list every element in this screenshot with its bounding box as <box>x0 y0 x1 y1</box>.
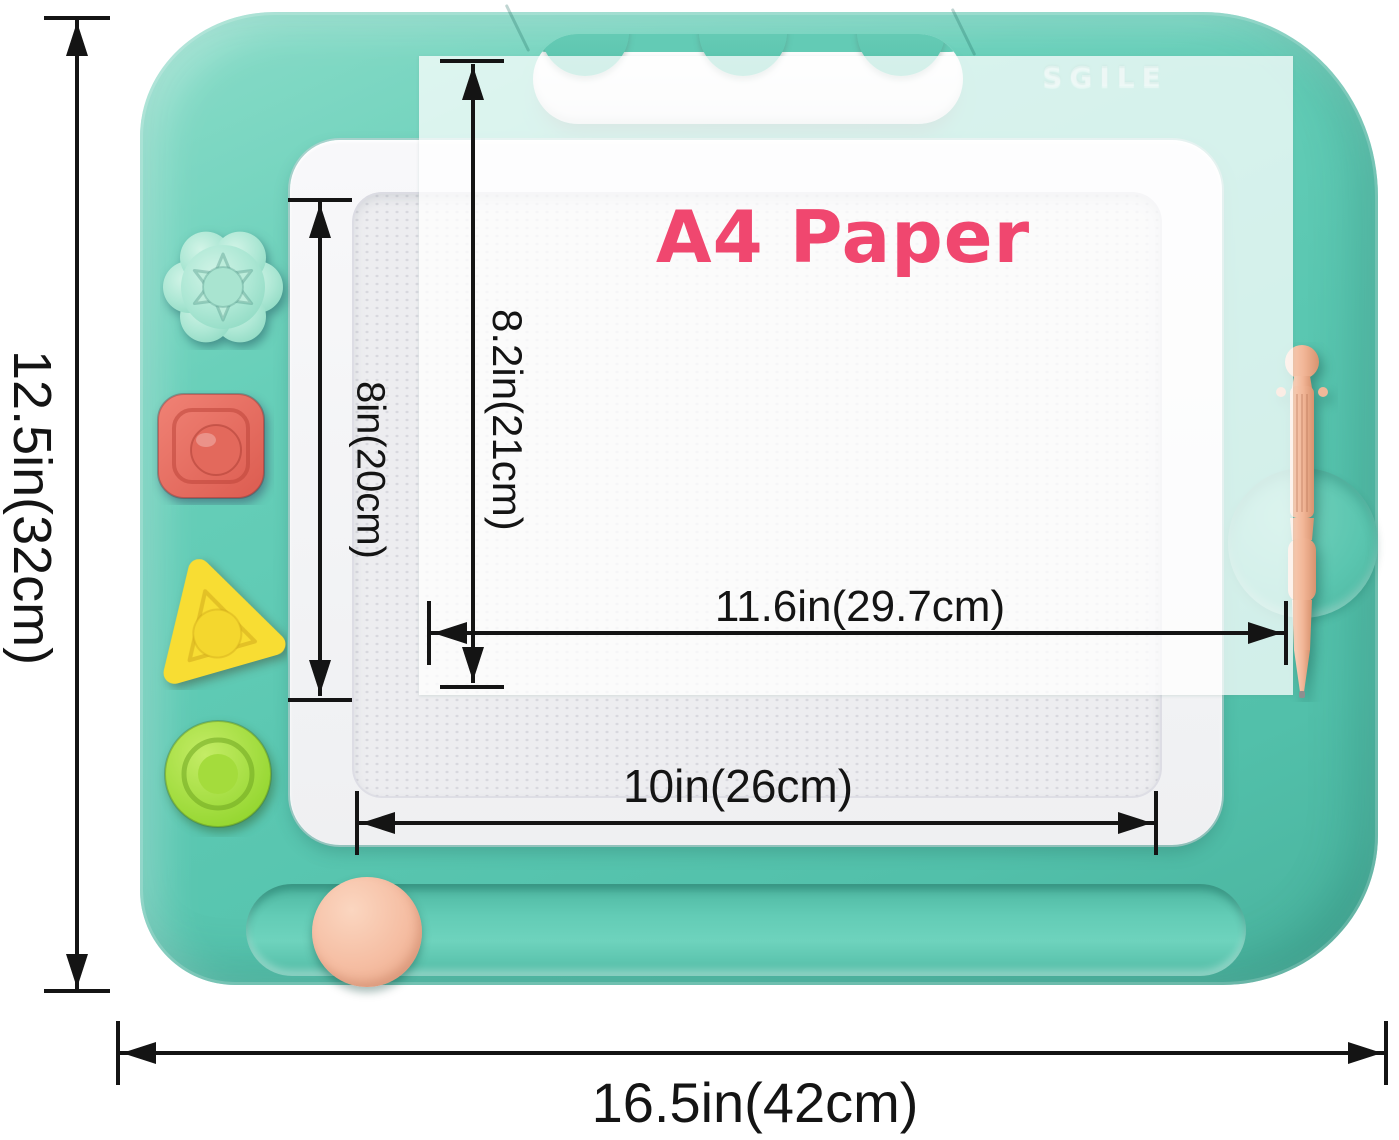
square-stamp-button <box>152 390 274 505</box>
arrowhead-left <box>433 622 467 644</box>
arrowhead-down <box>66 954 88 988</box>
board-width-dim-line <box>120 1051 1386 1055</box>
arrowhead-up <box>309 204 331 238</box>
dim-tick <box>440 59 504 63</box>
board-height-label: 12.5in(32cm) <box>0 308 64 708</box>
dim-tick <box>288 198 352 202</box>
product-dimension-figure: SGILE <box>0 0 1399 1140</box>
arrowhead-right <box>1248 622 1282 644</box>
paper-height-dim-line <box>471 64 475 683</box>
arrowhead-right <box>1118 812 1152 834</box>
arrowhead-right <box>1348 1042 1382 1064</box>
draw-area-width-dim-line <box>359 821 1156 825</box>
dim-tick <box>1154 791 1158 855</box>
eraser-slider-knob <box>312 877 422 987</box>
arrowhead-down <box>462 647 484 681</box>
dim-tick <box>427 601 431 665</box>
paper-height-label: 8.2in(21cm) <box>478 290 536 550</box>
dim-tick <box>44 16 110 20</box>
dim-tick <box>1284 601 1288 665</box>
board-height-dim-line <box>75 20 79 991</box>
dim-tick <box>44 989 110 993</box>
flower-stamp-button <box>160 225 290 350</box>
paper-width-label: 11.6in(29.7cm) <box>660 584 1060 630</box>
dim-tick <box>355 791 359 855</box>
dim-tick <box>1384 1021 1388 1085</box>
arrowhead-down <box>309 660 331 694</box>
arrowhead-up <box>66 22 88 56</box>
circle-stamp-button <box>155 712 285 837</box>
triangle-stamp-button <box>142 550 287 690</box>
draw-area-height-dim-line <box>318 202 322 696</box>
draw-area-height-label: 8in(20cm) <box>342 372 398 568</box>
dim-tick <box>288 698 352 702</box>
arrowhead-left <box>122 1042 156 1064</box>
arrowhead-up <box>462 66 484 100</box>
dim-tick <box>116 1021 120 1085</box>
a4-paper-label: A4 Paper <box>623 194 1063 280</box>
arrowhead-left <box>361 812 395 834</box>
draw-area-width-label: 10in(26cm) <box>538 762 938 810</box>
dim-tick <box>440 685 504 689</box>
board-width-label: 16.5in(42cm) <box>505 1072 1005 1132</box>
